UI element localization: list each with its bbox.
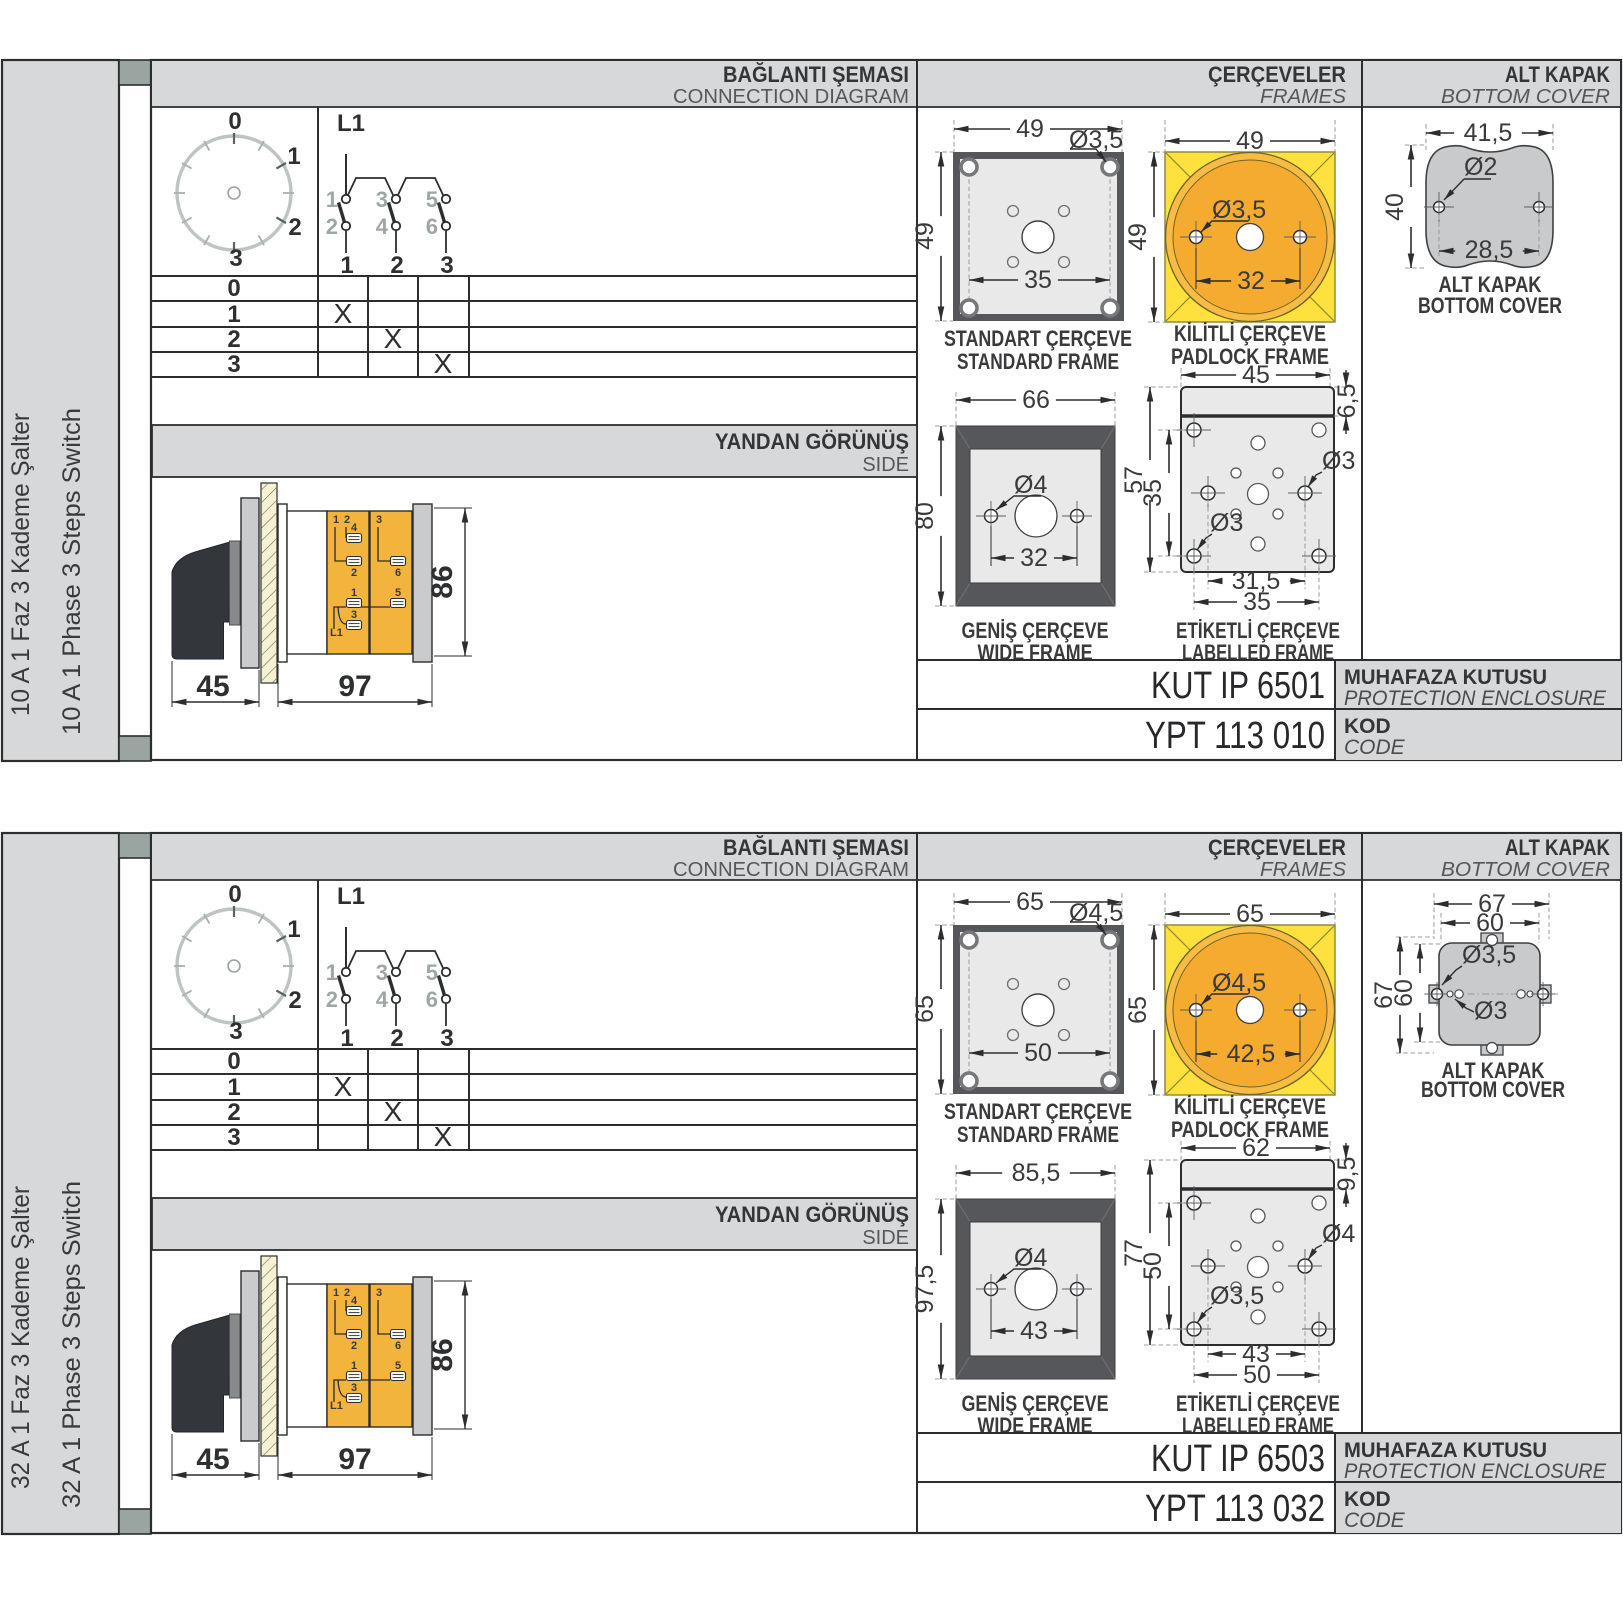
svg-text:BAĞLANTI ŞEMASI: BAĞLANTI ŞEMASI bbox=[723, 62, 909, 87]
svg-text:2: 2 bbox=[390, 252, 403, 279]
svg-text:X: X bbox=[384, 1096, 403, 1127]
svg-text:4: 4 bbox=[351, 522, 358, 534]
svg-text:4: 4 bbox=[351, 1295, 358, 1307]
svg-text:Ø3: Ø3 bbox=[1210, 509, 1243, 537]
svg-text:L1: L1 bbox=[330, 1400, 343, 1412]
svg-text:Ø4: Ø4 bbox=[1014, 471, 1047, 499]
svg-text:KOD: KOD bbox=[1344, 715, 1391, 738]
svg-text:2: 2 bbox=[288, 987, 301, 1014]
svg-text:1: 1 bbox=[340, 1025, 353, 1052]
svg-text:3: 3 bbox=[376, 514, 382, 526]
svg-text:BAĞLANTI ŞEMASI: BAĞLANTI ŞEMASI bbox=[723, 835, 909, 860]
svg-text:SIDE: SIDE bbox=[862, 1227, 909, 1249]
svg-text:FRAMES: FRAMES bbox=[1260, 859, 1347, 881]
svg-text:3: 3 bbox=[376, 960, 388, 985]
svg-text:0: 0 bbox=[228, 108, 241, 135]
svg-text:49: 49 bbox=[1016, 115, 1044, 143]
svg-text:L1: L1 bbox=[337, 883, 365, 910]
svg-text:49: 49 bbox=[911, 222, 939, 250]
svg-text:3: 3 bbox=[351, 1382, 357, 1394]
svg-text:45: 45 bbox=[196, 1443, 229, 1476]
svg-text:1: 1 bbox=[351, 1360, 357, 1372]
svg-text:62: 62 bbox=[1242, 1134, 1270, 1162]
svg-text:6,5: 6,5 bbox=[1333, 384, 1361, 419]
svg-text:Ø4: Ø4 bbox=[1322, 1220, 1355, 1248]
svg-text:97,5: 97,5 bbox=[911, 1265, 939, 1314]
svg-text:ALT KAPAK: ALT KAPAK bbox=[1505, 62, 1610, 87]
svg-text:97: 97 bbox=[338, 1443, 371, 1476]
svg-text:CONNECTION DIAGRAM: CONNECTION DIAGRAM bbox=[673, 86, 909, 108]
svg-text:X: X bbox=[384, 323, 403, 354]
svg-text:3: 3 bbox=[229, 1018, 242, 1045]
svg-text:BOTTOM COVER: BOTTOM COVER bbox=[1421, 1077, 1565, 1102]
svg-text:2: 2 bbox=[326, 987, 338, 1012]
svg-text:65: 65 bbox=[911, 995, 939, 1023]
svg-text:35: 35 bbox=[1139, 479, 1167, 507]
svg-text:KUT IP 6501: KUT IP 6501 bbox=[1151, 665, 1325, 707]
svg-text:2: 2 bbox=[288, 214, 301, 241]
svg-text:FRAMES: FRAMES bbox=[1260, 86, 1347, 108]
svg-text:85,5: 85,5 bbox=[1012, 1159, 1061, 1187]
svg-text:BOTTOM COVER: BOTTOM COVER bbox=[1441, 859, 1610, 881]
svg-text:40: 40 bbox=[1381, 193, 1409, 221]
svg-text:6: 6 bbox=[426, 214, 438, 239]
svg-text:1: 1 bbox=[287, 143, 300, 170]
svg-text:KİLİTLİ ÇERÇEVE: KİLİTLİ ÇERÇEVE bbox=[1174, 1094, 1326, 1119]
svg-text:5: 5 bbox=[426, 187, 438, 212]
svg-text:49: 49 bbox=[1236, 127, 1264, 155]
svg-text:CONNECTION DIAGRAM: CONNECTION DIAGRAM bbox=[673, 859, 909, 881]
svg-text:KİLİTLİ ÇERÇEVE: KİLİTLİ ÇERÇEVE bbox=[1174, 321, 1326, 346]
svg-text:4: 4 bbox=[376, 214, 389, 239]
svg-text:Ø3: Ø3 bbox=[1322, 447, 1355, 475]
svg-text:2: 2 bbox=[344, 514, 350, 526]
svg-text:X: X bbox=[334, 298, 353, 329]
svg-text:ALT KAPAK: ALT KAPAK bbox=[1505, 835, 1610, 860]
svg-text:1: 1 bbox=[227, 1074, 240, 1101]
svg-text:5: 5 bbox=[395, 1360, 401, 1372]
svg-text:65: 65 bbox=[1124, 996, 1152, 1024]
svg-text:YANDAN GÖRÜNÜŞ: YANDAN GÖRÜNÜŞ bbox=[715, 429, 909, 454]
svg-text:3: 3 bbox=[351, 609, 357, 621]
svg-text:PROTECTION ENCLOSURE: PROTECTION ENCLOSURE bbox=[1344, 687, 1607, 710]
svg-text:WIDE FRAME: WIDE FRAME bbox=[978, 1413, 1093, 1438]
svg-text:MUHAFAZA KUTUSU: MUHAFAZA KUTUSU bbox=[1344, 1439, 1547, 1462]
svg-text:3: 3 bbox=[227, 351, 240, 378]
svg-text:32 A 1 Phase 3 Steps Switch: 32 A 1 Phase 3 Steps Switch bbox=[58, 1181, 86, 1508]
svg-text:ÇERÇEVELER: ÇERÇEVELER bbox=[1208, 62, 1346, 87]
svg-text:KUT IP 6503: KUT IP 6503 bbox=[1151, 1438, 1325, 1480]
svg-text:4: 4 bbox=[376, 987, 389, 1012]
svg-text:50: 50 bbox=[1024, 1039, 1052, 1067]
svg-text:9,5: 9,5 bbox=[1333, 1157, 1361, 1192]
svg-text:STANDART ÇERÇEVE: STANDART ÇERÇEVE bbox=[944, 326, 1132, 351]
svg-text:65: 65 bbox=[1016, 888, 1044, 916]
svg-text:L1: L1 bbox=[337, 110, 365, 137]
svg-text:0: 0 bbox=[228, 881, 241, 908]
svg-text:2: 2 bbox=[390, 1025, 403, 1052]
svg-text:Ø4: Ø4 bbox=[1014, 1244, 1047, 1272]
svg-text:1: 1 bbox=[227, 301, 240, 328]
svg-text:65: 65 bbox=[1236, 900, 1264, 928]
svg-text:CODE: CODE bbox=[1344, 736, 1406, 759]
svg-text:6: 6 bbox=[395, 1340, 401, 1352]
svg-text:41,5: 41,5 bbox=[1464, 119, 1513, 147]
svg-text:1: 1 bbox=[333, 1287, 339, 1299]
svg-text:STANDARD FRAME: STANDARD FRAME bbox=[957, 1122, 1119, 1147]
svg-text:1: 1 bbox=[287, 916, 300, 943]
svg-text:Ø2: Ø2 bbox=[1464, 153, 1497, 181]
svg-text:Ø3,5: Ø3,5 bbox=[1210, 1282, 1264, 1310]
svg-text:66: 66 bbox=[1022, 386, 1050, 414]
svg-text:32: 32 bbox=[1237, 267, 1265, 295]
svg-text:MUHAFAZA KUTUSU: MUHAFAZA KUTUSU bbox=[1344, 666, 1547, 689]
svg-text:42,5: 42,5 bbox=[1227, 1040, 1276, 1068]
svg-text:3: 3 bbox=[440, 1025, 453, 1052]
svg-text:3: 3 bbox=[227, 1124, 240, 1151]
svg-text:2: 2 bbox=[227, 326, 240, 353]
svg-text:2: 2 bbox=[344, 1287, 350, 1299]
svg-text:X: X bbox=[334, 1071, 353, 1102]
svg-text:60: 60 bbox=[1390, 979, 1418, 1007]
svg-text:6: 6 bbox=[426, 987, 438, 1012]
svg-text:35: 35 bbox=[1024, 266, 1052, 294]
svg-text:WIDE FRAME: WIDE FRAME bbox=[978, 640, 1093, 665]
svg-text:3: 3 bbox=[376, 187, 388, 212]
svg-text:28,5: 28,5 bbox=[1465, 236, 1514, 264]
svg-text:YPT 113 010: YPT 113 010 bbox=[1145, 715, 1325, 757]
svg-text:CODE: CODE bbox=[1344, 1509, 1406, 1532]
svg-text:ÇERÇEVELER: ÇERÇEVELER bbox=[1208, 835, 1346, 860]
svg-text:10 A 1 Faz 3 Kademe Şalter: 10 A 1 Faz 3 Kademe Şalter bbox=[7, 413, 35, 716]
svg-text:1: 1 bbox=[326, 187, 338, 212]
svg-text:2: 2 bbox=[227, 1099, 240, 1126]
svg-text:0: 0 bbox=[227, 275, 240, 302]
svg-text:YANDAN GÖRÜNÜŞ: YANDAN GÖRÜNÜŞ bbox=[715, 1202, 909, 1227]
svg-text:1: 1 bbox=[351, 587, 357, 599]
svg-text:2: 2 bbox=[351, 1340, 357, 1352]
svg-text:3: 3 bbox=[440, 252, 453, 279]
svg-text:10 A 1 Phase 3 Steps Switch: 10 A 1 Phase 3 Steps Switch bbox=[58, 408, 86, 735]
svg-text:LABELLED FRAME: LABELLED FRAME bbox=[1182, 640, 1334, 665]
svg-text:Ø3: Ø3 bbox=[1474, 997, 1507, 1025]
svg-text:5: 5 bbox=[426, 960, 438, 985]
svg-text:45: 45 bbox=[196, 670, 229, 703]
svg-text:49: 49 bbox=[1124, 223, 1152, 251]
svg-text:1: 1 bbox=[333, 514, 339, 526]
svg-text:KOD: KOD bbox=[1344, 1488, 1391, 1511]
svg-text:SIDE: SIDE bbox=[862, 454, 909, 476]
svg-text:Ø4,5: Ø4,5 bbox=[1212, 969, 1266, 997]
svg-text:STANDART ÇERÇEVE: STANDART ÇERÇEVE bbox=[944, 1099, 1132, 1124]
svg-text:97: 97 bbox=[338, 670, 371, 703]
svg-text:1: 1 bbox=[340, 252, 353, 279]
svg-text:43: 43 bbox=[1020, 1317, 1048, 1345]
svg-text:Ø3,5: Ø3,5 bbox=[1462, 941, 1516, 969]
svg-text:X: X bbox=[434, 1121, 453, 1152]
svg-text:35: 35 bbox=[1243, 588, 1271, 616]
svg-text:YPT 113 032: YPT 113 032 bbox=[1145, 1488, 1325, 1530]
svg-text:BOTTOM COVER: BOTTOM COVER bbox=[1441, 86, 1610, 108]
svg-text:3: 3 bbox=[229, 245, 242, 272]
svg-text:2: 2 bbox=[326, 214, 338, 239]
svg-text:86: 86 bbox=[426, 565, 459, 598]
svg-text:32: 32 bbox=[1020, 544, 1048, 572]
svg-text:6: 6 bbox=[395, 567, 401, 579]
svg-text:50: 50 bbox=[1243, 1361, 1271, 1389]
svg-text:L1: L1 bbox=[330, 627, 343, 639]
svg-text:STANDARD FRAME: STANDARD FRAME bbox=[957, 349, 1119, 374]
svg-text:X: X bbox=[434, 348, 453, 379]
svg-text:45: 45 bbox=[1242, 361, 1270, 389]
svg-text:1: 1 bbox=[326, 960, 338, 985]
svg-text:5: 5 bbox=[395, 587, 401, 599]
svg-text:80: 80 bbox=[911, 502, 939, 530]
svg-text:2: 2 bbox=[351, 567, 357, 579]
svg-text:Ø3,5: Ø3,5 bbox=[1212, 196, 1266, 224]
svg-text:86: 86 bbox=[426, 1338, 459, 1371]
svg-text:0: 0 bbox=[227, 1048, 240, 1075]
svg-text:3: 3 bbox=[376, 1287, 382, 1299]
svg-text:PROTECTION ENCLOSURE: PROTECTION ENCLOSURE bbox=[1344, 1460, 1607, 1483]
svg-text:BOTTOM COVER: BOTTOM COVER bbox=[1418, 293, 1562, 318]
svg-text:LABELLED FRAME: LABELLED FRAME bbox=[1182, 1413, 1334, 1438]
svg-text:32 A 1 Faz 3 Kademe Şalter: 32 A 1 Faz 3 Kademe Şalter bbox=[7, 1186, 35, 1489]
svg-text:50: 50 bbox=[1139, 1252, 1167, 1280]
